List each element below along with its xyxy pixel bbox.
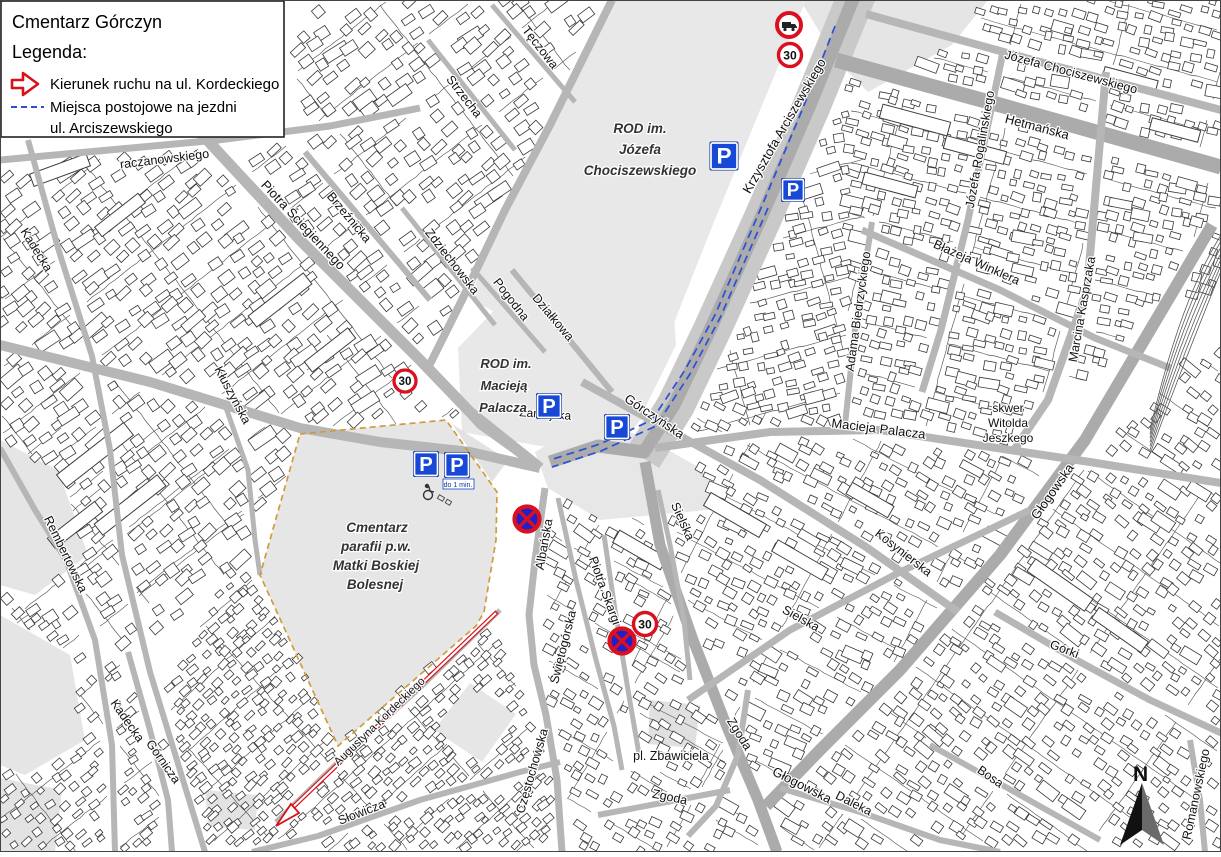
- svg-text:ROD im.: ROD im.: [480, 356, 531, 371]
- svg-text:Bolesnej: Bolesnej: [347, 577, 404, 592]
- svg-text:skwer: skwer: [992, 401, 1023, 415]
- svg-text:ROD im.: ROD im.: [613, 121, 666, 136]
- svg-text:P: P: [787, 179, 799, 200]
- svg-text:Macieją: Macieją: [481, 378, 528, 393]
- svg-text:parafii p.w.: parafii p.w.: [340, 539, 411, 554]
- svg-text:Kierunek ruchu na ul. Kordecki: Kierunek ruchu na ul. Kordeckiego: [50, 76, 279, 93]
- svg-text:pl. Zbawiciela: pl. Zbawiciela: [633, 749, 709, 763]
- svg-text:Józefa: Józefa: [619, 142, 662, 157]
- svg-text:Jeszkego: Jeszkego: [983, 431, 1034, 445]
- svg-text:Palacza: Palacza: [479, 400, 527, 415]
- svg-text:Cmentarz: Cmentarz: [346, 520, 408, 535]
- svg-text:P: P: [419, 454, 433, 476]
- svg-text:30: 30: [399, 375, 412, 388]
- svg-text:30: 30: [638, 617, 652, 631]
- svg-text:ul. Arciszewskiego: ul. Arciszewskiego: [50, 120, 173, 137]
- svg-text:P: P: [610, 417, 624, 439]
- svg-text:Witolda: Witolda: [988, 416, 1028, 430]
- svg-text:N: N: [1133, 763, 1148, 786]
- svg-text:P: P: [542, 396, 556, 418]
- svg-text:Legenda:: Legenda:: [12, 42, 87, 62]
- svg-text:Miejsca postojowe na jezdni: Miejsca postojowe na jezdni: [50, 99, 237, 116]
- svg-text:do 1 min.: do 1 min.: [444, 482, 473, 489]
- svg-text:30: 30: [783, 48, 797, 62]
- svg-text:Chociszewskiego: Chociszewskiego: [584, 163, 697, 178]
- svg-text:Cmentarz Górczyn: Cmentarz Górczyn: [12, 12, 162, 32]
- svg-text:Matki Boskiej: Matki Boskiej: [333, 558, 420, 573]
- svg-text:P: P: [716, 144, 731, 169]
- svg-text:P: P: [450, 455, 464, 477]
